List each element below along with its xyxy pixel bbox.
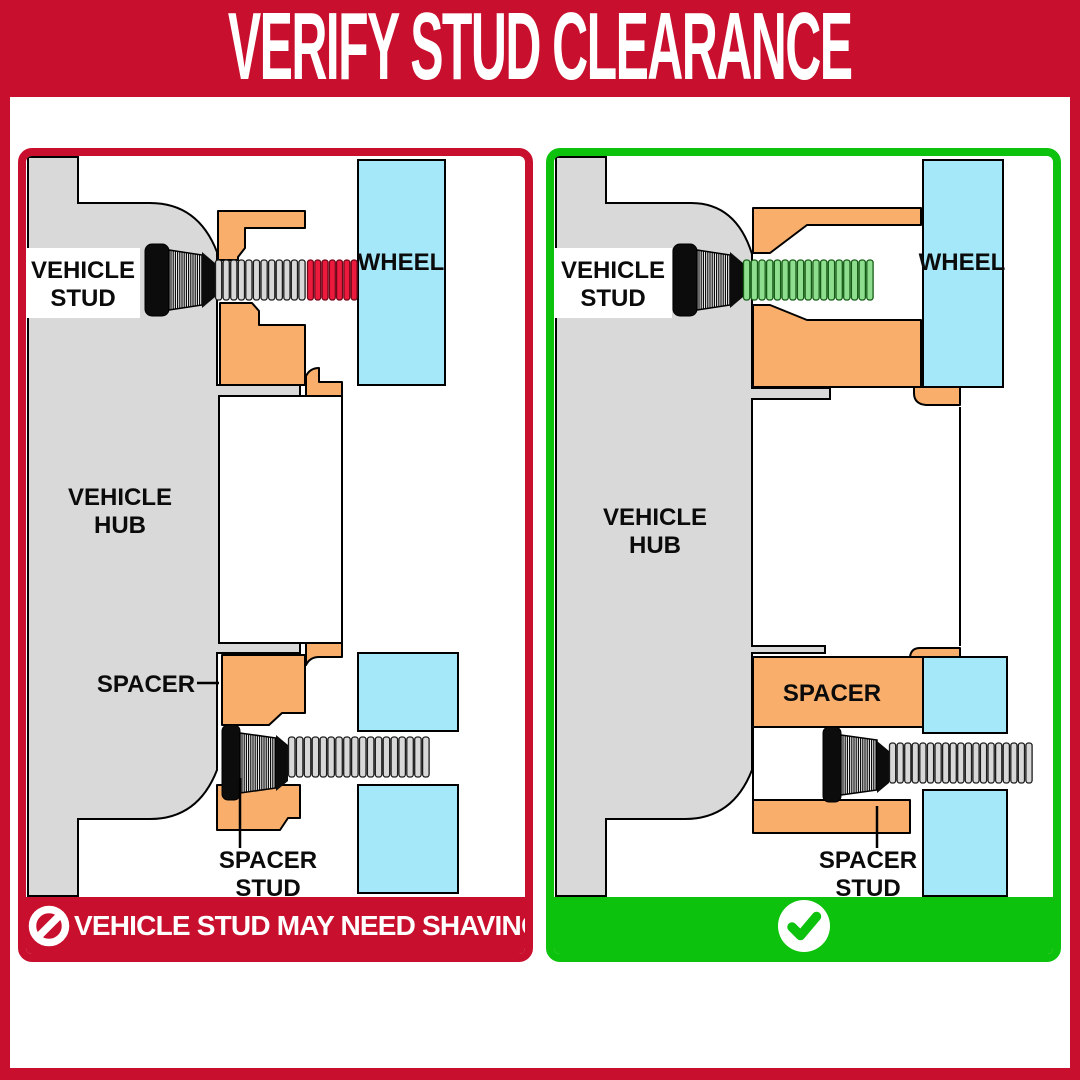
vehicle-stud-label-line1: VEHICLE — [31, 257, 135, 284]
spacer-stud-label-line2: STUD — [235, 875, 300, 897]
page-title: VERIFY STUD CLEARANCE — [228, 0, 852, 99]
vehicle-stud-threads-clearance — [744, 260, 874, 300]
spacer-stud-splines — [240, 733, 276, 793]
spacer-upper-front — [218, 211, 305, 260]
spacer-upper-lip — [914, 387, 960, 405]
spacer-lower-lip — [910, 648, 960, 657]
wheel-label: WHEEL — [358, 249, 445, 276]
spacer-lower-lip — [306, 643, 342, 665]
vehicle-stud-head — [145, 244, 169, 316]
vehicle-stud-label-line2: STUD — [580, 285, 645, 312]
spacer-upper-front — [753, 208, 921, 253]
vehicle-stud-head — [673, 244, 697, 316]
spacer-stud-label-line1: SPACER — [219, 847, 317, 874]
spacer-label: SPACER — [783, 680, 881, 707]
spacer-lower-block — [222, 655, 305, 725]
wheel-label: WHEEL — [919, 249, 1006, 276]
spacer-stud-head — [823, 727, 841, 802]
left-diagram: VEHICLE STUD WHEEL VEHICLE HUB SPACER SP… — [26, 156, 525, 897]
right-panel-correct: VEHICLE STUD WHEEL VEHICLE HUB SPACER SP… — [546, 148, 1061, 962]
spacer-lower-base — [753, 800, 910, 833]
spacer-stud-pocket — [753, 727, 827, 800]
wheel-lower-back — [923, 790, 1007, 896]
spacer-upper-back — [753, 305, 921, 387]
header-banner: VERIFY STUD CLEARANCE — [0, 0, 1080, 97]
spacer-upper-back — [220, 303, 305, 385]
result-banner-good — [554, 897, 1053, 954]
spacer-stud-head — [222, 725, 240, 800]
vehicle-stud-threads-interference — [308, 260, 358, 300]
result-banner-bad: VEHICLE STUD MAY NEED SHAVING — [26, 897, 525, 954]
vehicle-stud-splines — [697, 250, 730, 310]
vehicle-hub-label-line1: VEHICLE — [603, 504, 707, 531]
no-symbol-icon — [26, 903, 72, 949]
vehicle-hub-label-line2: HUB — [94, 512, 146, 539]
spacer-stud-splines — [841, 735, 877, 795]
wheel-lower-front — [358, 653, 458, 731]
page: { "header": { "title": "VERIFY STUD CLEA… — [0, 0, 1080, 1080]
vehicle-hub-label-line2: HUB — [629, 532, 681, 559]
vehicle-stud-threads — [216, 260, 306, 300]
vehicle-stud-label-line1: VEHICLE — [561, 257, 665, 284]
right-diagram: VEHICLE STUD WHEEL VEHICLE HUB SPACER SP… — [554, 156, 1053, 897]
spacer-stud-collar — [276, 735, 288, 791]
vehicle-hub-label-line1: VEHICLE — [68, 484, 172, 511]
spacer-stud-threads — [890, 743, 1033, 783]
hub-bore — [219, 396, 342, 643]
vehicle-stud-label-line2: STUD — [50, 285, 115, 312]
vehicle-stud-splines — [169, 250, 202, 310]
spacer-upper-lip — [306, 368, 342, 396]
spacer-label: SPACER — [97, 671, 195, 698]
wheel-lower-front — [923, 657, 1007, 733]
check-icon — [776, 898, 832, 954]
spacer-stud-collar — [877, 741, 889, 793]
left-panel-incorrect: VEHICLE STUD WHEEL VEHICLE HUB SPACER SP… — [18, 148, 533, 962]
banner-text: VEHICLE STUD MAY NEED SHAVING — [74, 910, 533, 942]
spacer-stud-threads — [289, 737, 430, 777]
spacer-stud-label-line1: SPACER — [819, 847, 917, 874]
spacer-stud-label-line2: STUD — [835, 875, 900, 897]
wheel-lower-back — [358, 785, 458, 893]
